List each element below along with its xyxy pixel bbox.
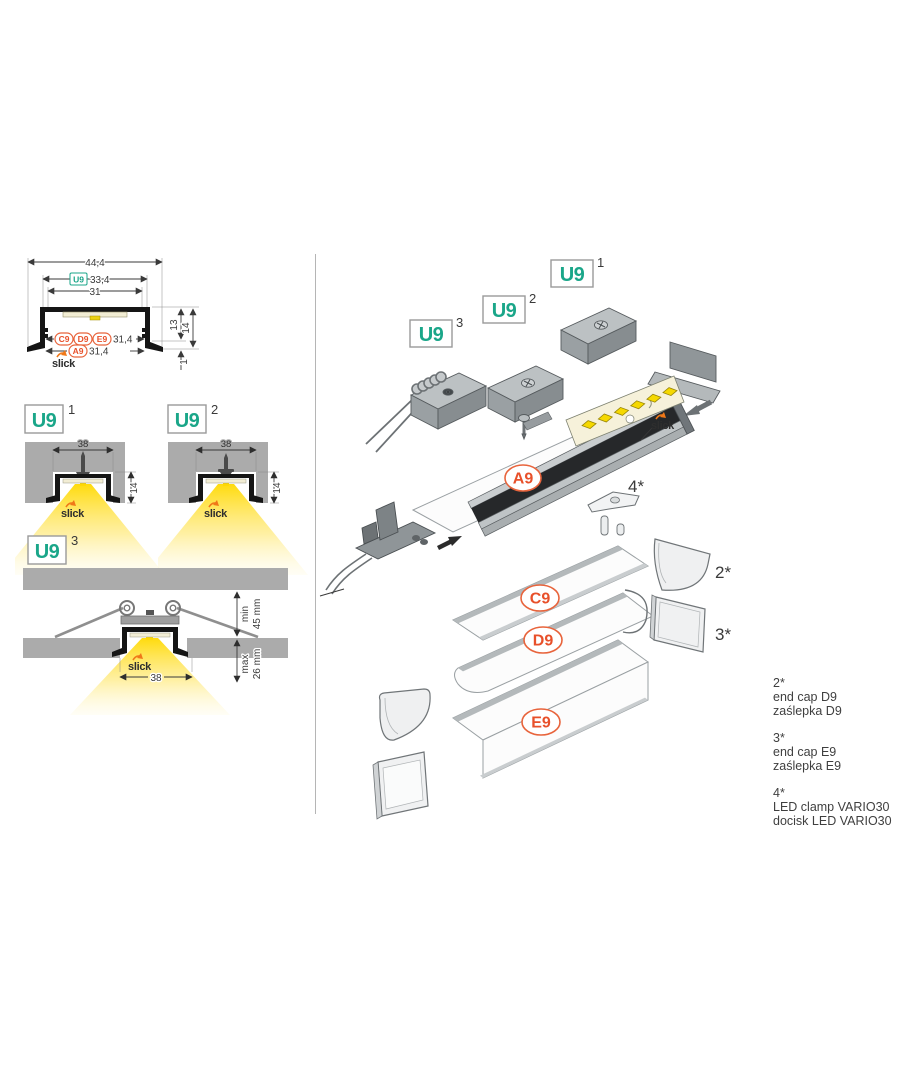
end-cap-d9-left: [380, 689, 431, 740]
badge-d9: D9: [78, 334, 89, 344]
legend-ref: 2*: [773, 676, 908, 690]
dimension-min-clearance: min 45 mm: [237, 592, 263, 636]
dim-covers-row-value: 31,4: [113, 335, 133, 346]
u9-badge-sup: 3: [71, 533, 78, 548]
badge-c9: C9: [59, 334, 70, 344]
led-strip: [130, 633, 170, 637]
mark-2-label: 2*: [715, 563, 731, 582]
u9-badge: U9 2: [168, 402, 218, 433]
slick-wordmark: slick: [128, 661, 152, 673]
slick-wordmark: slick: [204, 508, 228, 520]
u9-badge-label: U9: [175, 410, 200, 432]
led-strip: [206, 479, 246, 483]
cover-a9-badge: A9: [505, 465, 541, 491]
a9-badge-row: A9 31,4: [46, 345, 144, 358]
insert-arrow-right: [683, 402, 711, 416]
divider-line: [315, 254, 316, 814]
slick-wordmark: slick: [651, 420, 675, 432]
legend: 2* end cap D9 zaślepka D9 3* end cap E9 …: [773, 676, 908, 841]
cover-c9-label: C9: [530, 591, 551, 608]
legend-text-en: LED clamp VARIO30: [773, 800, 908, 814]
u9-badge-label: U9: [419, 324, 444, 346]
insert-arrow-left: [438, 536, 462, 548]
max-label: max: [240, 655, 251, 674]
u9-badge-1: U9 1: [551, 255, 604, 287]
mount-variant-3-diagram: U9 3 slick: [15, 530, 305, 715]
u9-badge-sup: 2: [211, 402, 218, 417]
mounting-bracket-1: [561, 308, 636, 364]
min-value: 45 mm: [252, 599, 263, 630]
slick-wordmark: slick: [52, 358, 76, 370]
mounting-bracket-2: [488, 366, 563, 439]
cover-badges-row: C9 D9 E9 31,4: [46, 333, 144, 346]
dim-u9-width-value: 33,4: [90, 275, 110, 286]
structural-ceiling: [23, 568, 288, 590]
u9-mini-badge: U9: [73, 275, 84, 285]
dim-flange-value: 1: [179, 359, 190, 365]
drop-ceiling-left: [23, 638, 120, 658]
dimension-inner-height: 13: [169, 309, 181, 339]
u9-badge-label: U9: [35, 541, 60, 563]
mounting-bracket-3-spring: [366, 372, 486, 452]
u9-badge-sup: 1: [68, 402, 75, 417]
dim-width-value: 38: [221, 439, 232, 450]
led-strip: [63, 479, 103, 483]
u9-badge-2: U9 2: [483, 291, 536, 323]
legend-group-4: 4* LED clamp VARIO30 docisk LED VARIO30: [773, 786, 908, 828]
dimension-flange-height: 1: [179, 351, 190, 370]
page: 44,4 U9 33,4 31 13: [0, 0, 910, 1080]
legend-ref: 3*: [773, 731, 908, 745]
cross-section-diagram: 44,4 U9 33,4 31 13: [10, 252, 215, 377]
legend-text-en: end cap D9: [773, 690, 908, 704]
exploded-assembly-view: U9 1 U9 2 U9 3: [318, 248, 768, 838]
mark-3-label: 3*: [715, 625, 731, 644]
dim-inner-width-value: 31: [89, 287, 101, 298]
u9-badge-sup: 1: [597, 255, 604, 270]
min-label: min: [240, 606, 251, 622]
legend-text-pl: zaślepka E9: [773, 759, 908, 773]
bracket-screw: [146, 610, 154, 615]
dim-width-value: 38: [150, 673, 162, 684]
mark-4-label: 4*: [628, 477, 644, 496]
dim-outer-height-value: 14: [181, 322, 192, 334]
dimension-outer-height: 14: [181, 309, 193, 347]
u9-badge: U9 3: [28, 533, 78, 564]
end-cap-d9-right: [654, 539, 710, 590]
legend-text-pl: zaślepka D9: [773, 704, 908, 718]
led-clamp-vario30: [588, 492, 639, 535]
dim-width-value: 38: [78, 439, 89, 450]
u9-badge-3: U9 3: [410, 315, 463, 347]
dimension-outer-width: 44,4: [28, 258, 162, 269]
legend-text-pl: docisk LED VARIO30: [773, 814, 908, 828]
u9-badge: U9 1: [25, 402, 75, 433]
max-value: 26 mm: [252, 649, 263, 680]
drop-ceiling-right: [187, 638, 288, 658]
slick-wordmark: slick: [61, 508, 85, 520]
legend-ref: 4*: [773, 786, 908, 800]
cover-e9-label: E9: [531, 715, 551, 732]
cover-a9-label: A9: [513, 471, 534, 488]
spring-bracket: [121, 616, 179, 624]
u9-badge-sup: 2: [529, 291, 536, 306]
badge-e9: E9: [97, 334, 108, 344]
u9-badge-label: U9: [492, 300, 517, 322]
u9-badge-sup: 3: [456, 315, 463, 330]
cover-d9-label: D9: [533, 633, 554, 650]
legend-text-en: end cap E9: [773, 745, 908, 759]
dim-depth-value: 14: [272, 482, 283, 494]
u9-badge-label: U9: [560, 264, 585, 286]
end-cap-e9-right: [650, 595, 705, 652]
led-strip: [63, 312, 127, 320]
badge-a9: A9: [73, 346, 84, 356]
wired-end-connector: [320, 502, 435, 596]
legend-group-3: 3* end cap E9 zaślepka E9: [773, 731, 908, 773]
u9-badge-label: U9: [32, 410, 57, 432]
legend-group-2: 2* end cap D9 zaślepka D9: [773, 676, 908, 718]
dim-a9-row-value: 31,4: [89, 347, 109, 358]
dimension-inner-width: 31: [48, 287, 142, 298]
dim-inner-height-value: 13: [169, 319, 180, 331]
end-cap-e9-left: [373, 752, 428, 819]
dim-outer-width-value: 44,4: [85, 258, 105, 269]
dim-depth-value: 14: [129, 482, 140, 494]
dimension-u9-width: U9 33,4: [43, 273, 147, 286]
